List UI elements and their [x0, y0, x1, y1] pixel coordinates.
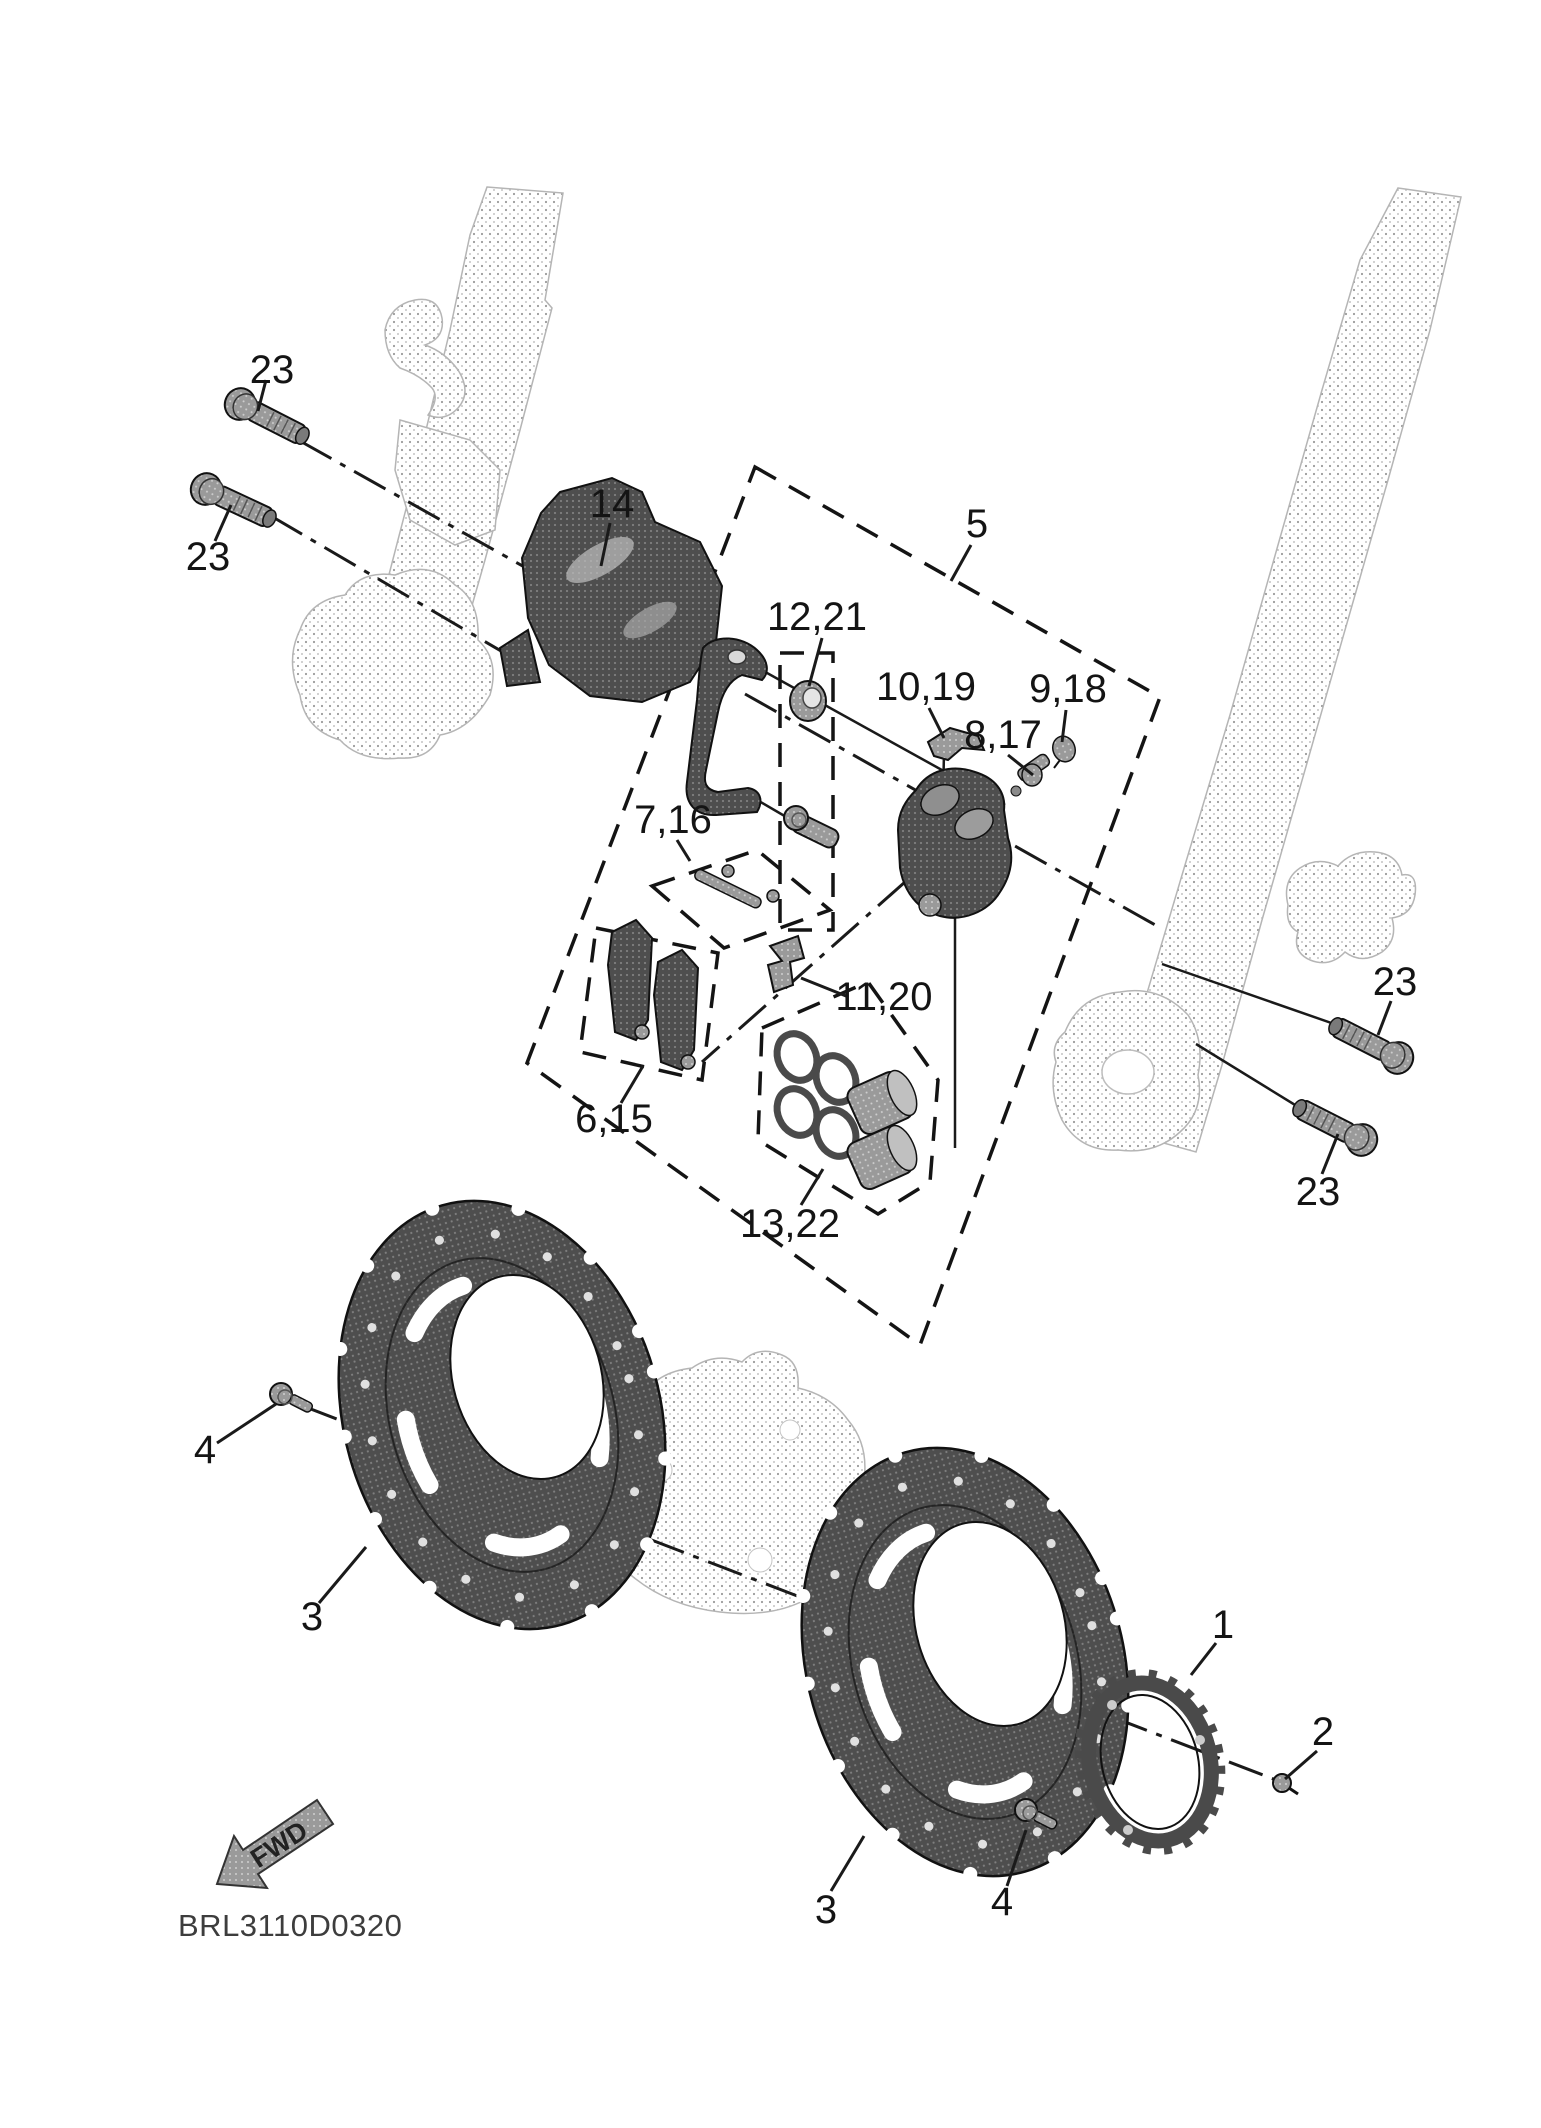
- callout-3b: 3: [815, 1888, 837, 1932]
- callout-7-16: 7,16: [634, 798, 712, 842]
- disc-bolt-head: [1015, 1799, 1037, 1821]
- callout-6-15: 6,15: [575, 1097, 653, 1141]
- leader-23c: [1378, 1001, 1391, 1035]
- brake-pads-6-15: [608, 920, 698, 1070]
- callout-23a: 23: [250, 348, 295, 392]
- sensor-rotor-hole: [1107, 1700, 1117, 1710]
- callout-23b: 23: [186, 535, 231, 579]
- callout-23d: 23: [1296, 1170, 1341, 1214]
- cap-stem: [1054, 760, 1060, 768]
- bushing-bore: [803, 688, 821, 708]
- callout-5: 5: [966, 502, 988, 546]
- disc-bolt-head: [270, 1383, 292, 1405]
- leader-1: [1191, 1643, 1216, 1675]
- brake-disc-left: [290, 1162, 714, 1668]
- parts-diagram-svg: 23 23 14 5 12,21 10,19 9,18 8,17 7,16 11…: [0, 0, 1541, 2128]
- fwd-arrow: FWD: [217, 1800, 333, 1888]
- bolt-23-top-left-lower: [186, 468, 282, 535]
- caliper-piston-housing: [898, 769, 1011, 918]
- bolt-23-top-left-upper: [219, 383, 315, 453]
- seal-piston-kit-13-22: [770, 1027, 923, 1192]
- screw-tip: [1289, 1788, 1298, 1794]
- callout-3a: 3: [301, 1595, 323, 1639]
- leader-12-21: [809, 638, 822, 686]
- pad-pin-kit-7-16: [693, 865, 779, 909]
- pad-pin-screw: [722, 865, 734, 877]
- callout-13-22: 13,22: [740, 1202, 840, 1246]
- disc-bolt-left-4: [270, 1383, 314, 1413]
- housing-lug: [919, 894, 941, 916]
- brake-pad: [654, 950, 698, 1070]
- drawing-code: BRL3110D0320: [178, 1908, 402, 1943]
- pad-pin-screw: [767, 890, 779, 902]
- callout-9-18: 9,18: [1029, 667, 1107, 711]
- parts-diagram-page: 23 23 14 5 12,21 10,19 9,18 8,17 7,16 11…: [0, 0, 1541, 2128]
- pad-clip-11-20: [768, 936, 804, 992]
- hub-hole-ghost: [748, 1548, 772, 1572]
- leader-5: [951, 545, 971, 581]
- caliper-lug: [500, 630, 540, 686]
- left-fork-lower-ghost: [293, 569, 494, 758]
- bleed-screw-tip: [1011, 786, 1021, 796]
- callout-2: 2: [1312, 1710, 1334, 1754]
- callout-1: 1: [1212, 1603, 1234, 1647]
- bleed-screw-cap-9-18: [1049, 733, 1079, 768]
- bushing-12-21: [790, 681, 826, 721]
- pad-tab: [635, 1025, 649, 1039]
- brake-pad: [608, 920, 652, 1040]
- bolt-23-right-lower: [1287, 1091, 1383, 1161]
- sensor-rotor-hole: [1195, 1735, 1205, 1745]
- sensor-rotor-hole: [1123, 1825, 1133, 1835]
- pad-tab: [681, 1055, 695, 1069]
- leader-7-16: [677, 840, 690, 861]
- right-hose-bracket-ghost: [1287, 852, 1416, 963]
- bracket-hole: [728, 650, 746, 664]
- callout-8-17: 8,17: [964, 713, 1042, 757]
- callout-11-20: 11,20: [835, 975, 932, 1019]
- callout-14: 14: [590, 482, 635, 526]
- hub-hole-ghost: [780, 1420, 800, 1440]
- callout-10-19: 10,19: [876, 665, 976, 709]
- leader-10-19: [929, 708, 944, 738]
- callout-4a: 4: [194, 1428, 216, 1472]
- leader-23d: [1322, 1134, 1338, 1174]
- leader-3b: [831, 1836, 864, 1891]
- bolt-23-right-upper: [1323, 1009, 1419, 1079]
- leader-3a: [319, 1547, 366, 1603]
- leader-2: [1285, 1751, 1317, 1779]
- leader-4a: [217, 1404, 276, 1443]
- callout-23c: 23: [1373, 960, 1418, 1004]
- callout-12-21: 12,21: [767, 595, 867, 639]
- callout-4b: 4: [991, 1880, 1013, 1924]
- right-axle-hole-ghost: [1102, 1050, 1154, 1094]
